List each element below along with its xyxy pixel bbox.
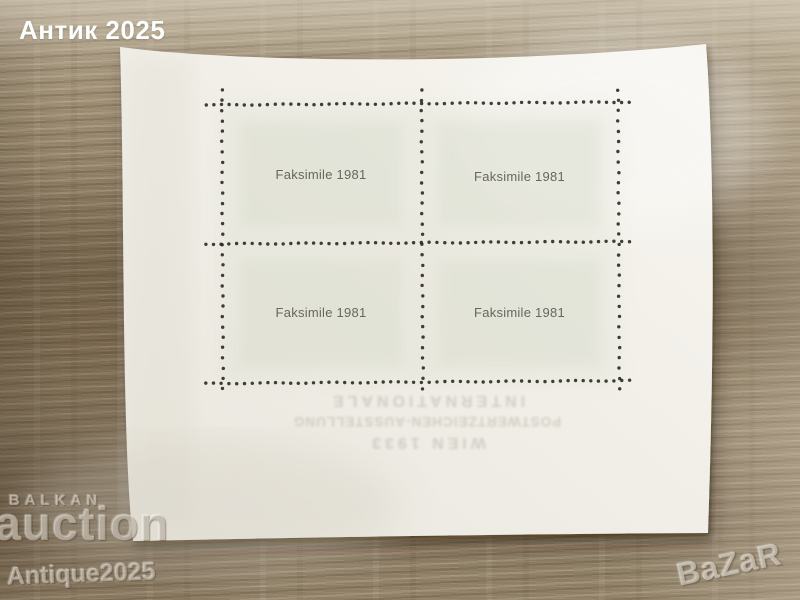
showthrough-line: WIEN 1933 — [282, 432, 572, 453]
stamp-label-top-left: Faksimile 1981 — [221, 106, 421, 243]
stamp-label-text: Faksimile 1981 — [276, 167, 367, 182]
photo-scene: Faksimile 1981 Faksimile 1981 Faksimile … — [0, 0, 800, 600]
stamp-label-bottom-left: Faksimile 1981 — [221, 243, 421, 382]
watermark-auction: auction — [0, 496, 169, 551]
stamp-label-top-right: Faksimile 1981 — [421, 108, 618, 245]
front-side-showthrough: WIEN 1933 POSTWERTZEICHEN-AUSSTELLUNG IN… — [282, 390, 572, 453]
watermark-antique2025: Antique2025 — [7, 557, 157, 591]
showthrough-line: POSTWERTZEICHEN-AUSSTELLUNG — [282, 411, 572, 432]
stamp-label-text: Faksimile 1981 — [276, 305, 367, 320]
showthrough-line: INTERNATIONALE — [282, 390, 572, 411]
stamp-label-text: Faksimile 1981 — [474, 169, 565, 184]
stamp-label-bottom-right: Faksimile 1981 — [421, 243, 618, 382]
watermark-antik-2025: Антик 2025 — [19, 15, 165, 46]
stamp-label-text: Faksimile 1981 — [474, 305, 565, 320]
